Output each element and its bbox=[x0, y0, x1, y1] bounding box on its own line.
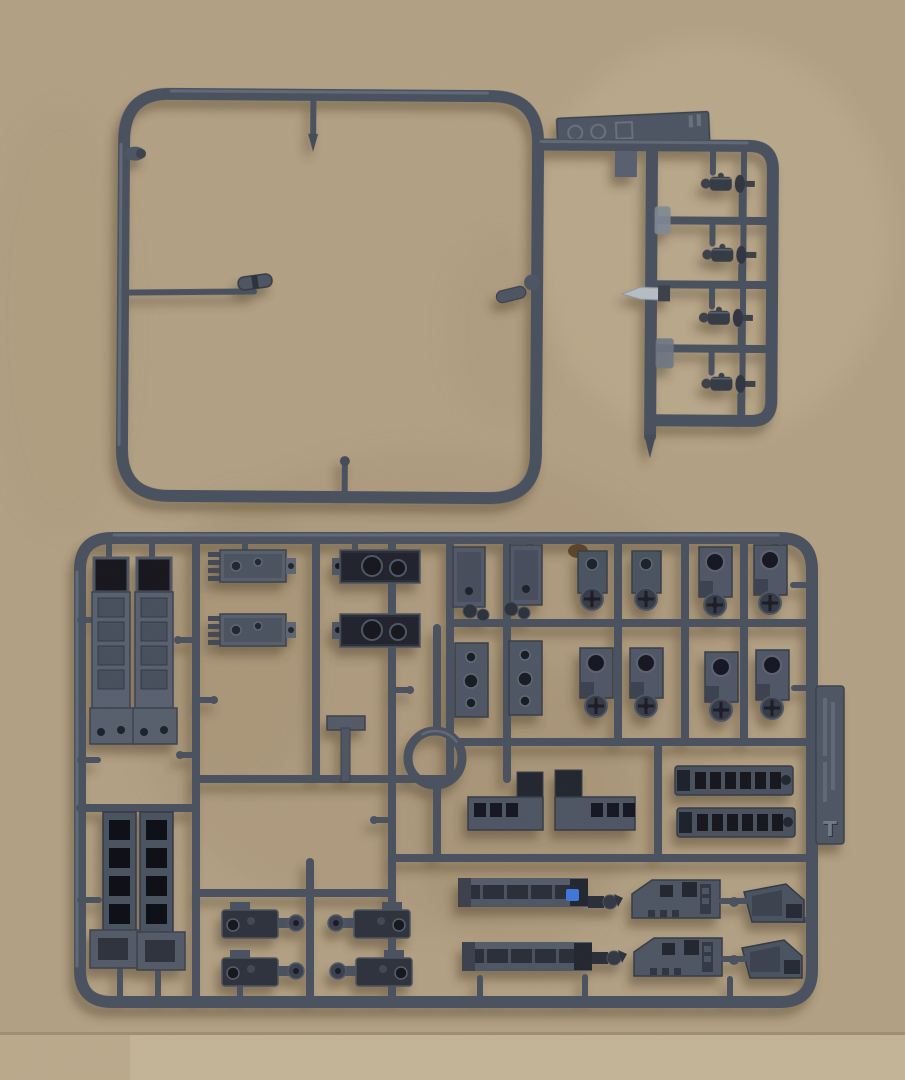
photo-model-kit-sprues: T T bbox=[0, 0, 905, 1080]
photo-grain-overlay bbox=[0, 0, 905, 1080]
sprue-photo-canvas: T T bbox=[0, 0, 905, 1080]
